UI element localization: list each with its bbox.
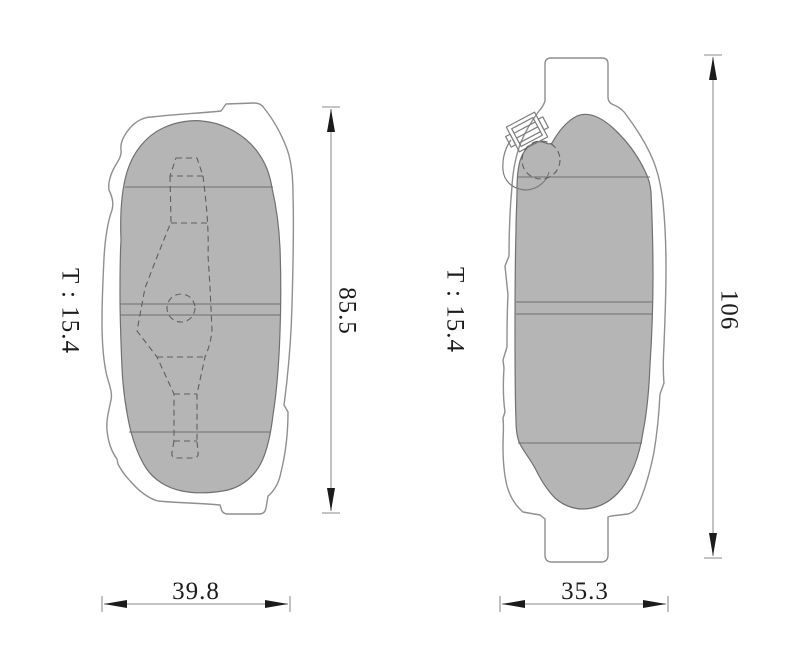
right-width-label: 35.3 bbox=[561, 578, 609, 605]
brake-pad-technical-drawing: 85.5 T : 15.4 39.8 106 T : 15.4 35.3 bbox=[0, 0, 800, 663]
arrow-right-icon bbox=[643, 600, 666, 608]
right-pad-view bbox=[502, 58, 666, 562]
drawing-surface: 85.5 T : 15.4 39.8 106 T : 15.4 35.3 bbox=[0, 0, 800, 663]
arrow-left-icon bbox=[502, 600, 525, 608]
right-height-label: 106 bbox=[715, 290, 742, 331]
arrow-down-icon bbox=[327, 488, 335, 511]
left-height-dimension: 85.5 bbox=[322, 107, 360, 513]
arrow-right-icon bbox=[265, 600, 288, 608]
left-width-dimension: 39.8 bbox=[102, 578, 290, 612]
left-thickness-label: T : 15.4 bbox=[56, 268, 83, 354]
left-pad-view bbox=[102, 103, 293, 514]
arrow-up-icon bbox=[327, 109, 335, 132]
left-height-label: 85.5 bbox=[333, 287, 360, 335]
right-width-dimension: 35.3 bbox=[500, 578, 668, 612]
arrow-up-icon bbox=[709, 57, 717, 80]
right-height-dimension: 106 bbox=[704, 55, 742, 558]
right-pad-friction-material bbox=[515, 114, 653, 509]
left-width-label: 39.8 bbox=[172, 578, 220, 605]
right-thickness-label: T : 15.4 bbox=[441, 267, 468, 353]
arrow-left-icon bbox=[104, 600, 127, 608]
arrow-down-icon bbox=[709, 533, 717, 556]
